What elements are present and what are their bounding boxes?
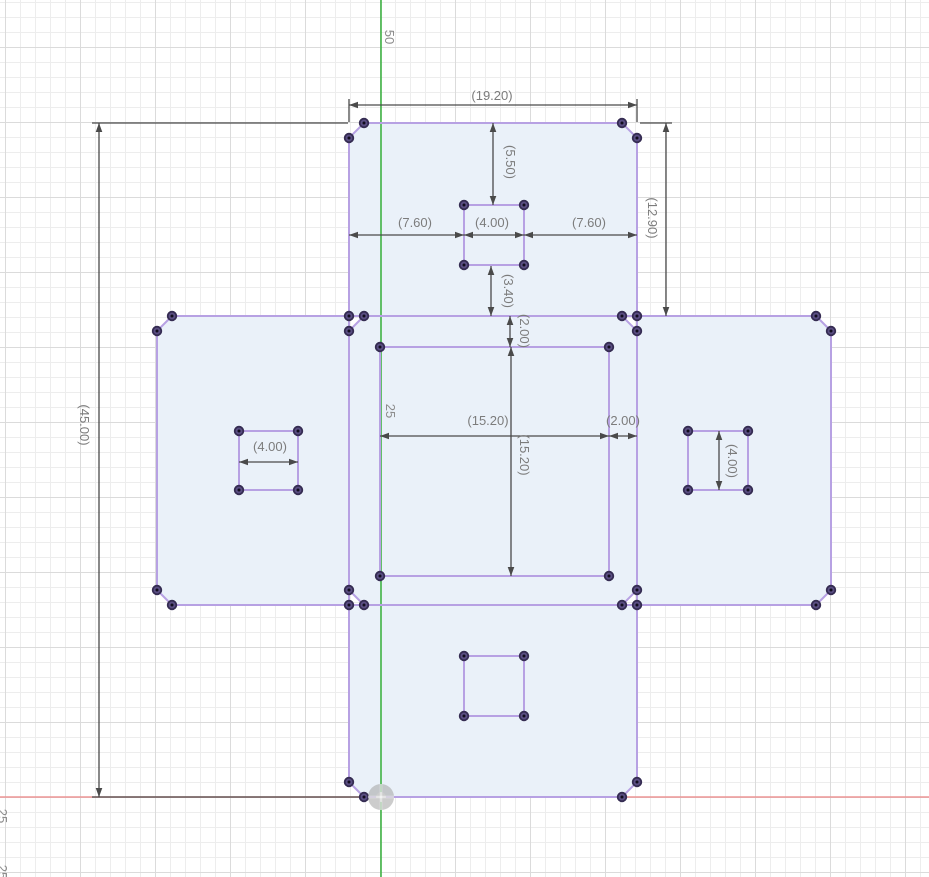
sketch-point-core [636, 781, 639, 784]
sketch-point-core [463, 715, 466, 718]
sketch-point[interactable] [684, 486, 693, 495]
dim-top-square-bottom-label[interactable]: (3.40) [501, 274, 516, 308]
sketch-point[interactable] [684, 427, 693, 436]
sketch-point-core [621, 122, 624, 125]
sketch-point-core [636, 589, 639, 592]
sketch-point[interactable] [744, 486, 753, 495]
sketch-point[interactable] [294, 427, 303, 436]
sketch-point-core [747, 430, 750, 433]
sketch-point[interactable] [633, 134, 642, 143]
dimension-arrowhead [663, 123, 670, 132]
sketch-canvas: (19.20)(5.50)(7.60)(4.00)(7.60)(12.90)(3… [0, 0, 929, 877]
sketch-point[interactable] [376, 343, 385, 352]
grid-label: 25 [0, 809, 10, 823]
sketch-point[interactable] [633, 601, 642, 610]
sketch-point-core [830, 589, 833, 592]
sketch-point-core [348, 604, 351, 607]
sketch-point[interactable] [812, 601, 821, 610]
dim-center-top-inset-label[interactable]: (2.00) [517, 314, 532, 348]
sketch-point-core [463, 655, 466, 658]
sketch-point[interactable] [520, 712, 529, 721]
sketch-point[interactable] [360, 312, 369, 321]
sketch-point-core [621, 796, 624, 799]
sketch-point-core [608, 575, 611, 578]
sketch-point[interactable] [360, 601, 369, 610]
dim-top-face-height[interactable]: (12.90) [645, 123, 669, 316]
sketch-point-core [636, 330, 639, 333]
dim-center-right-inset[interactable]: (2.00) [606, 413, 640, 439]
sketch-point[interactable] [520, 261, 529, 270]
sketch-point[interactable] [345, 327, 354, 336]
sketch-point[interactable] [605, 343, 614, 352]
grid-label: 25 [0, 865, 10, 877]
sketch-point-core [523, 655, 526, 658]
origin-marker[interactable] [368, 784, 394, 810]
sketch-point-core [636, 315, 639, 318]
sketch-point-core [379, 575, 382, 578]
dim-top-square-offset-label[interactable]: (5.50) [503, 145, 518, 179]
sketch-point[interactable] [460, 652, 469, 661]
dim-center-square-h-label[interactable]: (15.20) [517, 434, 532, 475]
sketch-point[interactable] [235, 427, 244, 436]
sketch-point[interactable] [460, 201, 469, 210]
sketch-point[interactable] [345, 601, 354, 610]
sketch-point-core [636, 604, 639, 607]
sketch-point-core [363, 315, 366, 318]
sketch-point-core [621, 604, 624, 607]
grid-label: 50 [382, 30, 397, 44]
sketch-point[interactable] [520, 652, 529, 661]
sketch-point[interactable] [460, 712, 469, 721]
sketch-point-core [621, 315, 624, 318]
sketch-point-core [687, 430, 690, 433]
face-bottom-fill[interactable] [349, 605, 637, 797]
sketch-point[interactable] [618, 119, 627, 128]
sketch-point[interactable] [360, 793, 369, 802]
sketch-point[interactable] [827, 586, 836, 595]
sketch-point-core [463, 264, 466, 267]
sketch-point-core [238, 489, 241, 492]
sketch-point[interactable] [633, 778, 642, 787]
sketch-point-core [815, 315, 818, 318]
sketch-point[interactable] [345, 778, 354, 787]
sketch-point-core [348, 589, 351, 592]
sketch-point[interactable] [633, 312, 642, 321]
dimension-arrowhead [628, 102, 637, 109]
sketch-point-core [363, 796, 366, 799]
sketch-viewport: (19.20)(5.50)(7.60)(4.00)(7.60)(12.90)(3… [0, 0, 929, 877]
sketch-point-core [463, 204, 466, 207]
sketch-point-core [747, 489, 750, 492]
dim-top-right-gap-label[interactable]: (7.60) [572, 215, 606, 230]
sketch-point[interactable] [294, 486, 303, 495]
sketch-point-core [171, 604, 174, 607]
face-left-fill[interactable] [157, 316, 349, 605]
sketch-point[interactable] [744, 427, 753, 436]
sketch-point-core [363, 604, 366, 607]
sketch-point-core [379, 346, 382, 349]
dim-top-left-gap-label[interactable]: (7.60) [398, 215, 432, 230]
sketch-point-core [523, 264, 526, 267]
sketch-point[interactable] [168, 312, 177, 321]
dim-center-top-inset[interactable]: (2.00) [507, 314, 532, 348]
sketch-point[interactable] [360, 119, 369, 128]
face-center-fill[interactable] [349, 316, 637, 605]
sketch-point[interactable] [168, 601, 177, 610]
sketch-point-core [830, 330, 833, 333]
sketch-point[interactable] [460, 261, 469, 270]
sketch-point-core [687, 489, 690, 492]
sketch-point-core [608, 346, 611, 349]
dim-center-square-w-label[interactable]: (15.20) [467, 413, 508, 428]
sketch-point-core [238, 430, 241, 433]
sketch-point[interactable] [153, 586, 162, 595]
sketch-point[interactable] [618, 601, 627, 610]
sketch-point-core [348, 781, 351, 784]
sketch-point[interactable] [827, 327, 836, 336]
sketch-point[interactable] [153, 327, 162, 336]
sketch-point[interactable] [605, 572, 614, 581]
dim-width-top[interactable]: (19.20) [349, 88, 637, 108]
sketch-point-core [523, 715, 526, 718]
dim-top-face-height-label[interactable]: (12.90) [645, 197, 660, 238]
dim-right-square-height-label[interactable]: (4.00) [725, 444, 740, 478]
sketch-point[interactable] [618, 312, 627, 321]
sketch-point-core [815, 604, 818, 607]
sketch-point-core [297, 430, 300, 433]
sketch-point-core [348, 137, 351, 140]
dim-width-top-label[interactable]: (19.20) [471, 88, 512, 103]
sketch-point-core [297, 489, 300, 492]
dim-top-square-width-label[interactable]: (4.00) [475, 215, 509, 230]
dimension-arrowhead [349, 102, 358, 109]
sketch-point-core [363, 122, 366, 125]
sketch-point[interactable] [633, 327, 642, 336]
sketch-point[interactable] [345, 312, 354, 321]
sketch-point-core [348, 315, 351, 318]
sketch-point-core [636, 137, 639, 140]
sketch-point[interactable] [618, 793, 627, 802]
sketch-point[interactable] [235, 486, 244, 495]
dim-left-square-width-label[interactable]: (4.00) [253, 439, 287, 454]
sketch-point-core [156, 330, 159, 333]
dimension-arrowhead [96, 788, 103, 797]
sketch-point[interactable] [633, 586, 642, 595]
sketch-point-core [523, 204, 526, 207]
sketch-point[interactable] [812, 312, 821, 321]
dim-overall-height-label[interactable]: (45.00) [77, 404, 92, 445]
sketch-point-core [348, 330, 351, 333]
dimension-arrowhead [663, 307, 670, 316]
dimension-arrowhead [96, 123, 103, 132]
sketch-point[interactable] [520, 201, 529, 210]
sketch-point-core [156, 589, 159, 592]
dim-center-right-inset-label[interactable]: (2.00) [606, 413, 640, 428]
sketch-point-core [171, 315, 174, 318]
sketch-point[interactable] [376, 572, 385, 581]
dim-overall-height[interactable]: (45.00) [77, 123, 102, 797]
sketch-point[interactable] [345, 134, 354, 143]
grid-label: 25 [383, 404, 398, 418]
sketch-point[interactable] [345, 586, 354, 595]
